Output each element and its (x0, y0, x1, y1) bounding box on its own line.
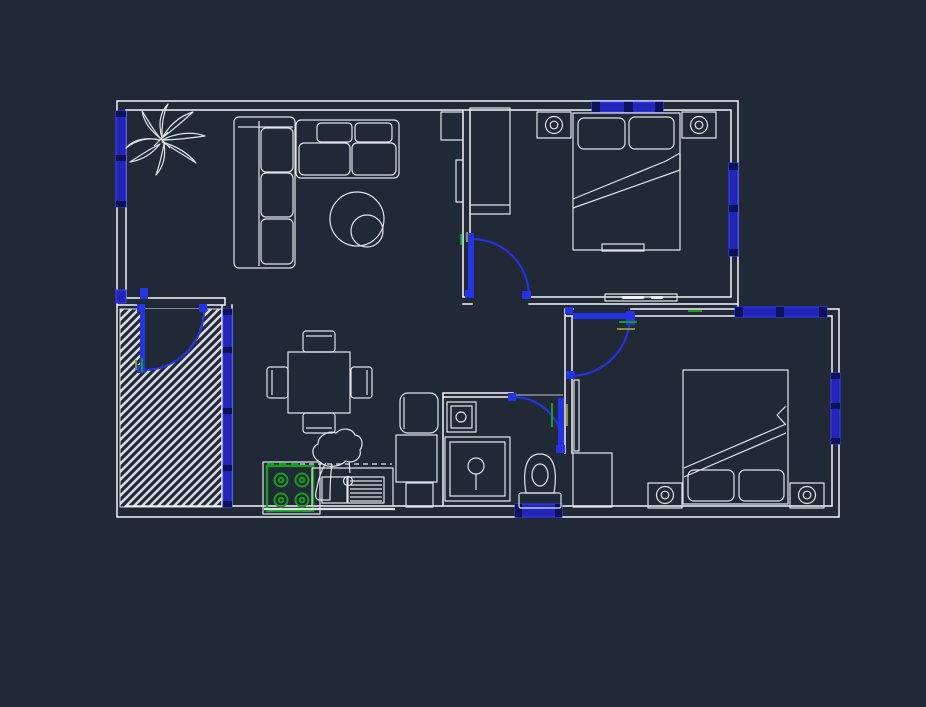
dining-area (267, 331, 372, 433)
floor-plan-canvas[interactable] (0, 0, 926, 707)
window-bathroom-bottom[interactable] (515, 504, 562, 517)
tv-panel[interactable] (456, 160, 463, 202)
door-bedroom2[interactable] (565, 307, 702, 451)
dining-table-set[interactable] (267, 331, 372, 433)
fridge[interactable] (400, 393, 438, 433)
toilet[interactable] (519, 454, 561, 508)
window-bedroom2-top[interactable] (735, 307, 827, 317)
nightstand-left-2[interactable] (648, 483, 682, 508)
door-bathroom[interactable] (508, 393, 567, 453)
window-bedroom2-right[interactable] (831, 373, 840, 444)
loveseat[interactable] (296, 120, 399, 178)
wall-corner-marker (116, 290, 126, 303)
washbasin[interactable] (447, 402, 476, 432)
wardrobe-bedroom2[interactable] (573, 453, 612, 507)
living-room (126, 104, 399, 268)
bed-2[interactable] (683, 370, 788, 504)
nightstand-left-1[interactable] (537, 112, 571, 138)
window-terrace-right[interactable] (223, 309, 232, 507)
window-bedroom1-top[interactable] (592, 102, 663, 112)
bedroom-2 (573, 370, 824, 508)
plant[interactable] (126, 104, 205, 175)
terrace-hatch-area[interactable] (120, 309, 223, 507)
window-living-left[interactable] (116, 111, 126, 207)
door-leaf-closed (574, 380, 579, 451)
bed-1[interactable] (573, 113, 680, 251)
sofa-l-section[interactable] (234, 117, 295, 268)
door-bedroom1[interactable] (461, 232, 531, 299)
window-bedroom1-right[interactable] (729, 163, 738, 256)
side-cabinet[interactable] (441, 112, 463, 140)
bedroom-1 (441, 108, 716, 251)
shower[interactable] (445, 437, 510, 501)
nightstand-right-1[interactable] (682, 112, 716, 138)
nightstand-right-2[interactable] (790, 483, 824, 508)
kitchen-cabinet[interactable] (396, 435, 437, 507)
bathroom (445, 402, 561, 508)
floor-plan-drawing (0, 0, 926, 707)
coffee-table[interactable] (330, 192, 384, 247)
wardrobe-bedroom1[interactable] (470, 108, 510, 214)
